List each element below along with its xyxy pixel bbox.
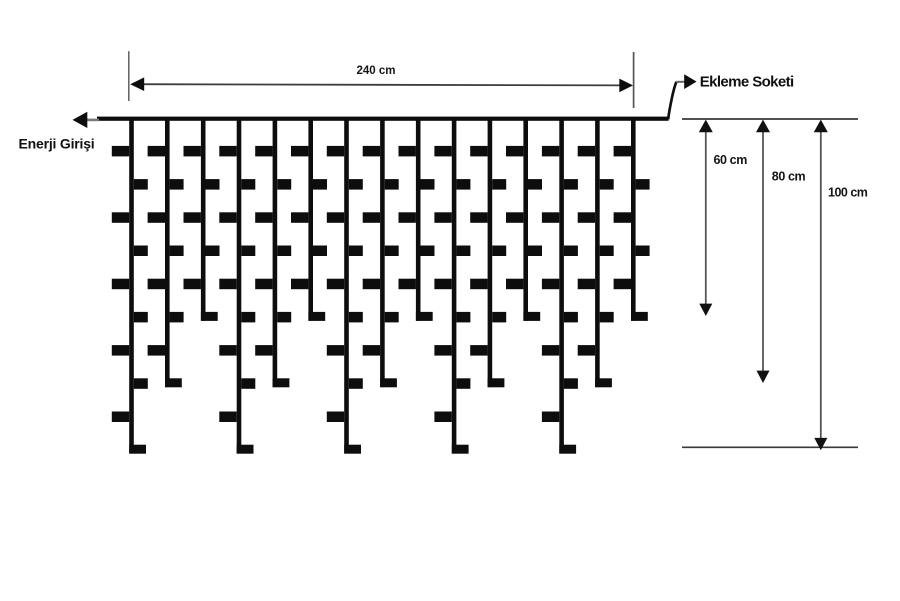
svg-text:Enerji Girişi: Enerji Girişi xyxy=(19,136,95,152)
svg-text:100 cm: 100 cm xyxy=(828,186,868,200)
svg-text:80 cm: 80 cm xyxy=(772,169,806,183)
svg-text:240 cm: 240 cm xyxy=(357,65,396,77)
svg-text:Ekleme Soketi: Ekleme Soketi xyxy=(700,73,794,90)
svg-text:60 cm: 60 cm xyxy=(714,153,748,167)
